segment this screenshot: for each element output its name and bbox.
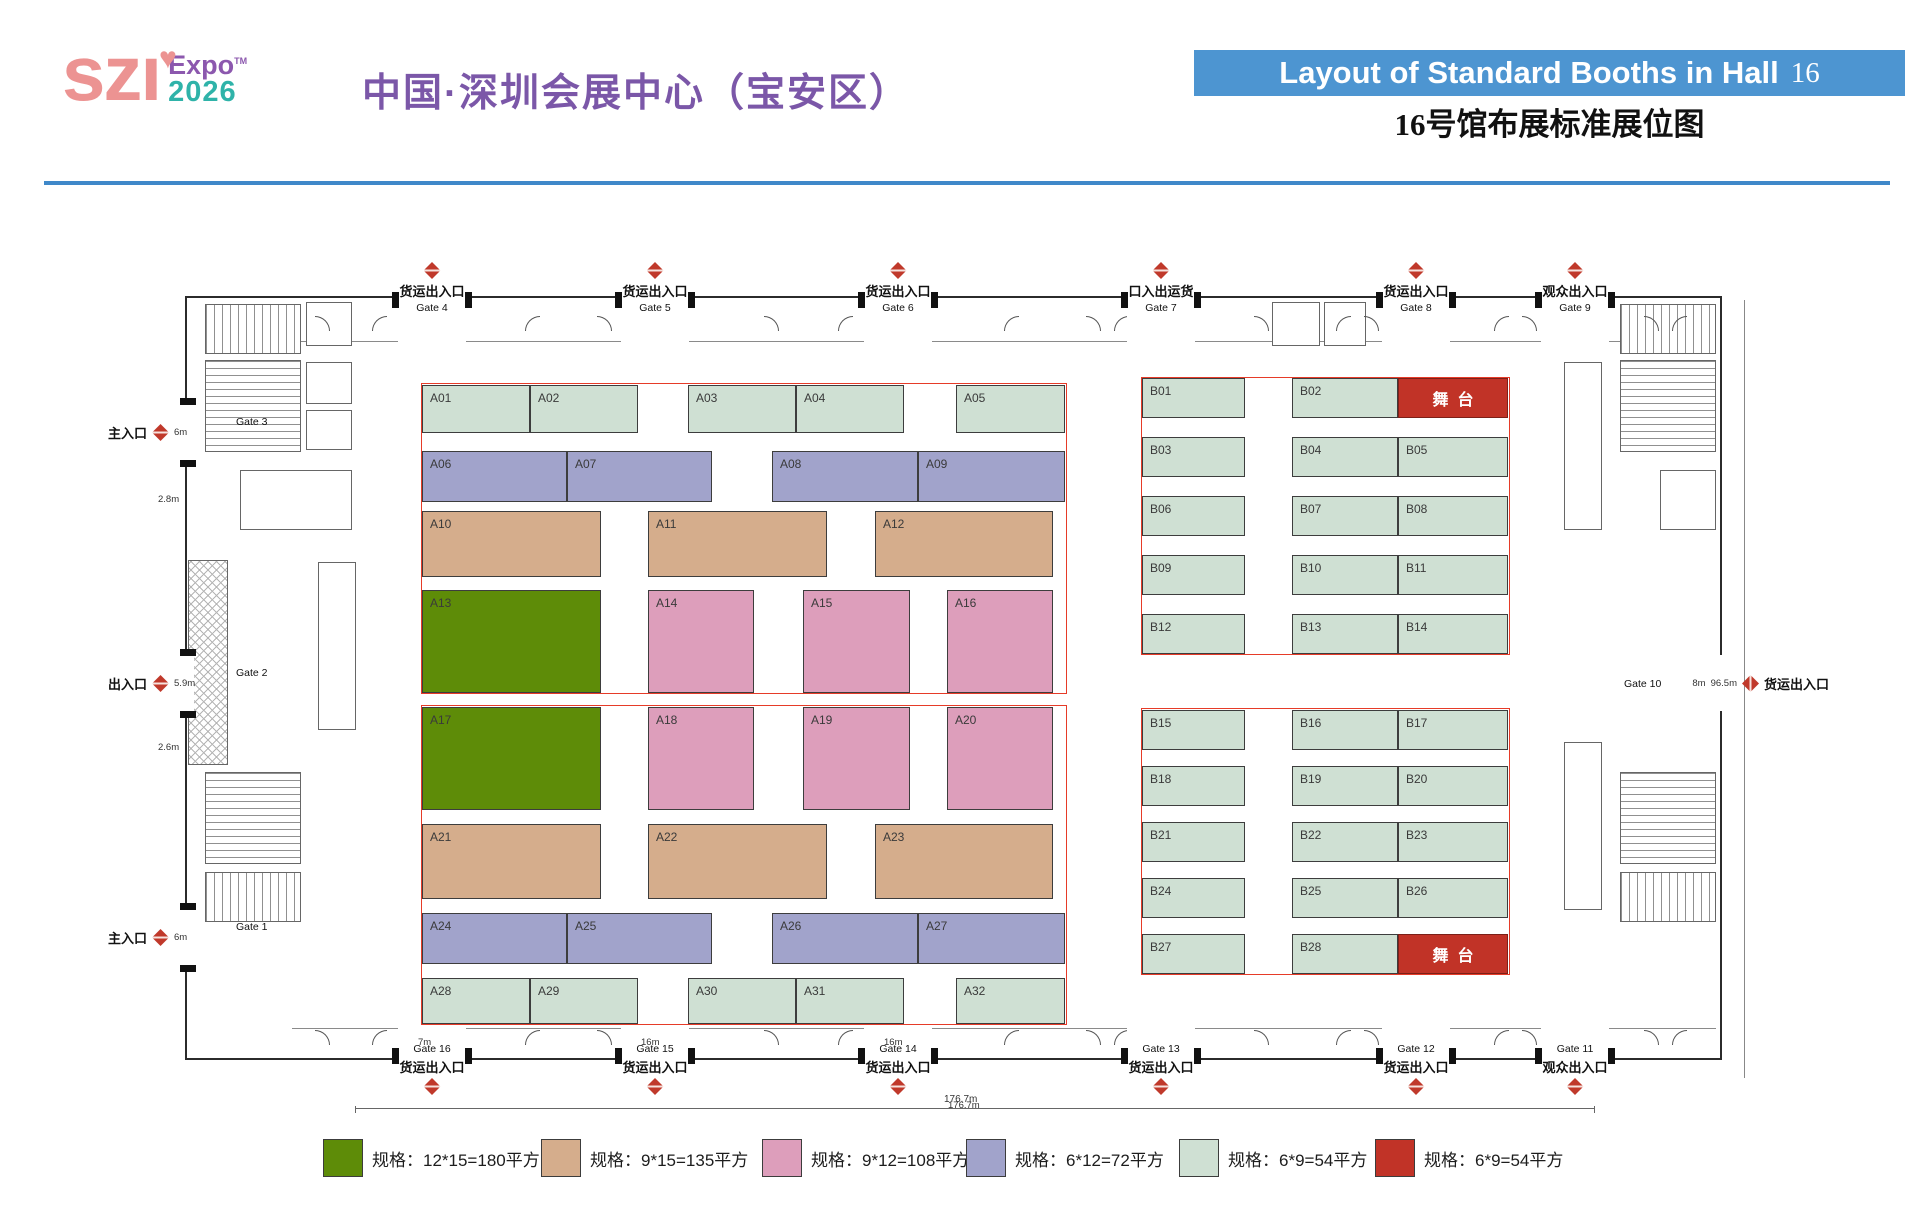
vestibule-hatch bbox=[188, 560, 228, 765]
entrance-diamond-icon bbox=[424, 1078, 441, 1095]
gate-jamb bbox=[180, 965, 196, 972]
entrance-marker-bottom: Gate 12货运出入口 bbox=[1346, 1043, 1486, 1095]
entrance-label: 货运出入口 bbox=[622, 1057, 687, 1076]
booth-B21: B21 bbox=[1142, 822, 1245, 862]
inner-wall-top bbox=[292, 341, 1716, 342]
gate-width-dim: 8m bbox=[1692, 678, 1705, 689]
entrance-diamond-icon bbox=[890, 1078, 907, 1095]
entrance-marker-top: 货运出入口Gate 8 bbox=[1346, 262, 1486, 314]
legend-item: 规格：12*15=180平方 bbox=[323, 1139, 540, 1177]
gate-label: Gate 5 bbox=[639, 302, 671, 314]
entrance-diamond-icon bbox=[152, 929, 169, 946]
booth-A16: A16 bbox=[947, 590, 1053, 693]
booth-B15: B15 bbox=[1142, 710, 1245, 750]
entrance-marker-left: 出入口5.9m bbox=[108, 674, 195, 693]
booth-A28: A28 bbox=[422, 978, 530, 1024]
gate-jamb bbox=[180, 903, 196, 910]
dimension-text: 7m bbox=[418, 1037, 431, 1048]
entrance-label: 货运出入口 bbox=[865, 281, 930, 300]
legend-label: 规格：6*9=54平方 bbox=[1424, 1146, 1563, 1171]
booth-B27: B27 bbox=[1142, 934, 1245, 974]
booth-A21: A21 bbox=[422, 824, 601, 899]
entrance-label: 货运出入口 bbox=[622, 281, 687, 300]
entrance-label: 货运出入口 bbox=[1383, 281, 1448, 300]
booth-A12: A12 bbox=[875, 511, 1053, 577]
entrance-diamond-icon bbox=[647, 262, 664, 279]
service-room bbox=[240, 470, 352, 530]
entrance-label: 货运出入口 bbox=[399, 1057, 464, 1076]
entrance-label: 主入口 bbox=[108, 928, 147, 947]
entrance-diamond-icon bbox=[152, 675, 169, 692]
elevator bbox=[306, 410, 352, 450]
booth-B07: B07 bbox=[1292, 496, 1398, 536]
gate-jamb bbox=[180, 711, 196, 718]
entrance-label: 口入出运货 bbox=[1128, 281, 1193, 300]
booth-A23: A23 bbox=[875, 824, 1053, 899]
booth-A15: A15 bbox=[803, 590, 910, 693]
stair-block bbox=[205, 772, 301, 864]
booth-A05: A05 bbox=[956, 385, 1065, 433]
service-room bbox=[1564, 362, 1602, 530]
booth-B25: B25 bbox=[1292, 878, 1398, 918]
legend-label: 规格：9*15=135平方 bbox=[590, 1146, 748, 1171]
restroom-block bbox=[205, 304, 301, 354]
booth-A06: A06 bbox=[422, 451, 567, 502]
gate-width-dim: 6m bbox=[174, 932, 187, 943]
legend-label: 规格：9*12=108平方 bbox=[811, 1146, 969, 1171]
service-room bbox=[306, 302, 352, 346]
booth-B08: B08 bbox=[1398, 496, 1508, 536]
entrance-diamond-icon bbox=[424, 262, 441, 279]
entrance-marker-top: 货运出入口Gate 5 bbox=[585, 262, 725, 314]
booth-A11: A11 bbox=[648, 511, 827, 577]
dimension-text: 2.8m bbox=[158, 494, 179, 505]
restroom-block bbox=[205, 872, 301, 922]
dimension-text: 2.6m bbox=[158, 742, 179, 753]
entrance-diamond-icon bbox=[1567, 262, 1584, 279]
entrance-label: 主入口 bbox=[108, 423, 147, 442]
booth-A26: A26 bbox=[772, 913, 918, 964]
legend-label: 规格：12*15=180平方 bbox=[372, 1146, 540, 1171]
elevator bbox=[306, 362, 352, 404]
booth-A04: A04 bbox=[796, 385, 904, 433]
booth-B18: B18 bbox=[1142, 766, 1245, 806]
entrance-label: 货运出入口 bbox=[1128, 1057, 1193, 1076]
entrance-diamond-icon bbox=[1567, 1078, 1584, 1095]
legend-swatch-g bbox=[323, 1139, 363, 1177]
booth-B22: B22 bbox=[1292, 822, 1398, 862]
entrance-label: 出入口 bbox=[108, 674, 147, 693]
stair-block bbox=[205, 360, 301, 452]
booth-A09: A09 bbox=[918, 451, 1065, 502]
booth-A02: A02 bbox=[530, 385, 638, 433]
booth-B24: B24 bbox=[1142, 878, 1245, 918]
gate-label: Gate 2 bbox=[236, 667, 268, 679]
legend-item: 规格：6*12=72平方 bbox=[966, 1139, 1164, 1177]
dimension-text: 16m bbox=[884, 1037, 902, 1048]
booth-A14: A14 bbox=[648, 590, 754, 693]
entrance-marker-left: 主入口6m bbox=[108, 423, 187, 442]
booth-A29: A29 bbox=[530, 978, 638, 1024]
entrance-label: 货运出入口 bbox=[865, 1057, 930, 1076]
gate-label: Gate 7 bbox=[1145, 302, 1177, 314]
booth-A03: A03 bbox=[688, 385, 796, 433]
legend-label: 规格：6*12=72平方 bbox=[1015, 1146, 1164, 1171]
booth-B09: B09 bbox=[1142, 555, 1245, 595]
entrance-diamond-icon bbox=[890, 262, 907, 279]
entrance-marker-bottom: Gate 13货运出入口 bbox=[1091, 1043, 1231, 1095]
booth-A25: A25 bbox=[567, 913, 712, 964]
legend-item: 规格：9*12=108平方 bbox=[762, 1139, 969, 1177]
gate-label: Gate 8 bbox=[1400, 302, 1432, 314]
entrance-label: 货运出入口 bbox=[1383, 1057, 1448, 1076]
booth-A07: A07 bbox=[567, 451, 712, 502]
booth-A17: A17 bbox=[422, 707, 601, 810]
legend-item: 规格：9*15=135平方 bbox=[541, 1139, 748, 1177]
entrance-diamond-icon bbox=[647, 1078, 664, 1095]
booth-B13: B13 bbox=[1292, 614, 1398, 654]
booth-B02: B02 bbox=[1292, 378, 1398, 418]
stair-block bbox=[1620, 360, 1716, 452]
entrance-diamond-icon bbox=[1153, 1078, 1170, 1095]
entrance-label: 观众出入口 bbox=[1542, 1057, 1607, 1076]
stair-block bbox=[1620, 772, 1716, 864]
booth-A30: A30 bbox=[688, 978, 796, 1024]
gate-label: Gate 3 bbox=[236, 416, 268, 428]
legend-label: 规格：6*9=54平方 bbox=[1228, 1146, 1367, 1171]
entrance-marker-bottom: Gate 11观众出入口 bbox=[1505, 1043, 1645, 1095]
gate-label: Gate 4 bbox=[416, 302, 448, 314]
entrance-marker-top: 货运出入口Gate 6 bbox=[828, 262, 968, 314]
legend-swatch-v bbox=[966, 1139, 1006, 1177]
gate-label: Gate 9 bbox=[1559, 302, 1591, 314]
entrance-diamond-icon bbox=[1408, 262, 1425, 279]
legend-item: 规格：6*9=54平方 bbox=[1179, 1139, 1367, 1177]
legend-item: 规格：6*9=54平方 bbox=[1375, 1139, 1563, 1177]
booth-A10: A10 bbox=[422, 511, 601, 577]
booth-B19: B19 bbox=[1292, 766, 1398, 806]
gate-label: Gate 11 bbox=[1557, 1043, 1594, 1055]
gate-jamb bbox=[180, 649, 196, 656]
legend-swatch-t bbox=[541, 1139, 581, 1177]
legend-swatch-s bbox=[1179, 1139, 1219, 1177]
booth-B11: B11 bbox=[1398, 555, 1508, 595]
gate-jamb bbox=[180, 398, 196, 405]
booth-B26: B26 bbox=[1398, 878, 1508, 918]
stage: 舞台 bbox=[1398, 934, 1508, 974]
gate-width-dim: 6m bbox=[174, 427, 187, 438]
booth-B20: B20 bbox=[1398, 766, 1508, 806]
booth-B28: B28 bbox=[1292, 934, 1398, 974]
gate-label: Gate 10 bbox=[1624, 678, 1661, 690]
restroom-block bbox=[1620, 872, 1716, 922]
entrance-marker-top: 观众出入口Gate 9 bbox=[1505, 262, 1645, 314]
entrance-marker-right: Gate 108m96.5m货运出入口 bbox=[1624, 674, 1829, 693]
entrance-label: 货运出入口 bbox=[1764, 674, 1829, 693]
gate-width-dim: 5.9m bbox=[174, 678, 195, 689]
entrance-marker-bottom: Gate 14货运出入口 bbox=[828, 1043, 968, 1095]
booth-A13: A13 bbox=[422, 590, 601, 693]
entrance-diamond-icon bbox=[1408, 1078, 1425, 1095]
booth-B16: B16 bbox=[1292, 710, 1398, 750]
booth-B04: B04 bbox=[1292, 437, 1398, 477]
booth-A08: A08 bbox=[772, 451, 918, 502]
booth-B01: B01 bbox=[1142, 378, 1245, 418]
service-room bbox=[1272, 302, 1320, 346]
booth-B06: B06 bbox=[1142, 496, 1245, 536]
legend-swatch-r bbox=[1375, 1139, 1415, 1177]
inner-wall-bottom bbox=[292, 1028, 1716, 1029]
booth-B03: B03 bbox=[1142, 437, 1245, 477]
booth-A20: A20 bbox=[947, 707, 1053, 810]
service-room bbox=[1660, 470, 1716, 530]
legend-swatch-p bbox=[762, 1139, 802, 1177]
gate-label: Gate 13 bbox=[1142, 1043, 1179, 1055]
booth-B17: B17 bbox=[1398, 710, 1508, 750]
entrance-label: 货运出入口 bbox=[399, 281, 464, 300]
service-room bbox=[1564, 742, 1602, 910]
entrance-marker-bottom: Gate 16货运出入口 bbox=[362, 1043, 502, 1095]
booth-A18: A18 bbox=[648, 707, 754, 810]
service-room bbox=[318, 562, 356, 730]
entrance-marker-top: 货运出入口Gate 4 bbox=[362, 262, 502, 314]
booth-B23: B23 bbox=[1398, 822, 1508, 862]
dimension-text: 176.7m bbox=[948, 1100, 980, 1111]
booth-A31: A31 bbox=[796, 978, 904, 1024]
booth-A22: A22 bbox=[648, 824, 827, 899]
booth-A27: A27 bbox=[918, 913, 1065, 964]
gate-label: Gate 1 bbox=[236, 921, 268, 933]
booth-A01: A01 bbox=[422, 385, 530, 433]
floor-plan: 176.7m A01A02A03A04A05A06A07A08A09A10A11… bbox=[0, 0, 1914, 1226]
page: szı♥ ExpoTM 2026 中国·深圳会展中心（宝安区） Layout o… bbox=[0, 0, 1914, 1226]
hall-height-dim: 96.5m bbox=[1711, 678, 1737, 689]
entrance-label: 观众出入口 bbox=[1542, 281, 1607, 300]
entrance-marker-top: 口入出运货Gate 7 bbox=[1091, 262, 1231, 314]
booth-A24: A24 bbox=[422, 913, 567, 964]
dimension-text: 16m bbox=[641, 1037, 659, 1048]
gate-label: Gate 12 bbox=[1397, 1043, 1434, 1055]
gate-label: Gate 6 bbox=[882, 302, 914, 314]
entrance-diamond-icon bbox=[1742, 675, 1759, 692]
stage: 舞台 bbox=[1398, 378, 1508, 418]
booth-A32: A32 bbox=[956, 978, 1065, 1024]
booth-B12: B12 bbox=[1142, 614, 1245, 654]
entrance-diamond-icon bbox=[152, 424, 169, 441]
booth-B14: B14 bbox=[1398, 614, 1508, 654]
booth-A19: A19 bbox=[803, 707, 910, 810]
booth-B10: B10 bbox=[1292, 555, 1398, 595]
entrance-marker-left: 主入口6m bbox=[108, 928, 187, 947]
entrance-diamond-icon bbox=[1153, 262, 1170, 279]
gate-jamb bbox=[180, 460, 196, 467]
booth-B05: B05 bbox=[1398, 437, 1508, 477]
entrance-marker-bottom: Gate 15货运出入口 bbox=[585, 1043, 725, 1095]
